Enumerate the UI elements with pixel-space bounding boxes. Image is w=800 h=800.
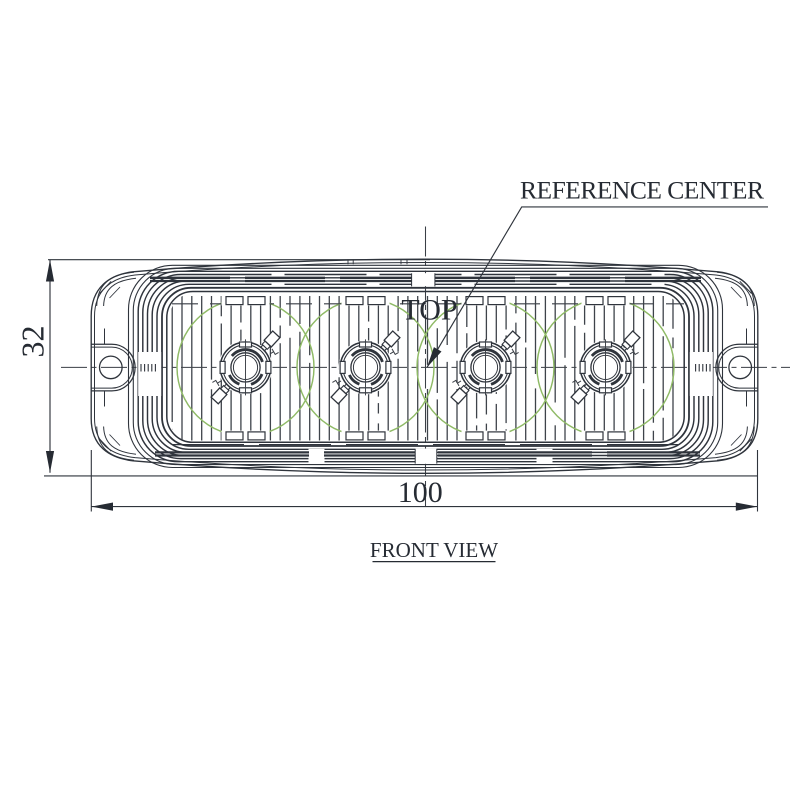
svg-text:100: 100: [398, 476, 443, 509]
svg-text:32: 32: [15, 326, 51, 358]
svg-text:REFERENCE CENTER: REFERENCE CENTER: [520, 175, 764, 204]
svg-text:TOP: TOP: [401, 293, 457, 326]
svg-text:FRONT VIEW: FRONT VIEW: [370, 538, 498, 562]
